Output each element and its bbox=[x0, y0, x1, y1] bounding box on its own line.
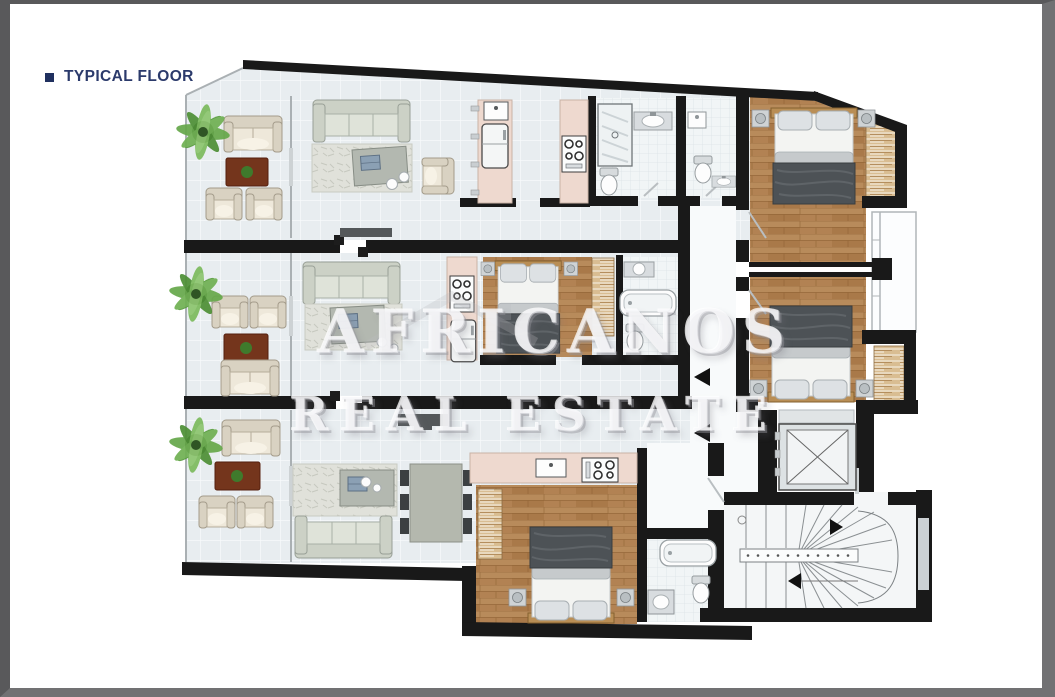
double-bed bbox=[768, 306, 854, 402]
title-bullet-icon bbox=[45, 73, 54, 82]
desk-with-laptop bbox=[340, 470, 394, 506]
sofa bbox=[295, 516, 392, 558]
shower bbox=[598, 104, 632, 166]
stove bbox=[562, 136, 586, 172]
ledge bbox=[779, 410, 854, 423]
nightstand bbox=[858, 110, 875, 127]
bathroom-sink bbox=[688, 112, 706, 128]
armchair bbox=[422, 158, 454, 194]
page-title: TYPICAL FLOOR bbox=[45, 68, 194, 86]
page-title-text: TYPICAL FLOOR bbox=[64, 68, 194, 86]
toilet bbox=[694, 156, 712, 183]
bathtub bbox=[620, 290, 676, 316]
toilet bbox=[692, 576, 710, 603]
double-bed bbox=[771, 108, 857, 204]
fridge bbox=[451, 320, 476, 362]
nightstand bbox=[750, 380, 767, 397]
nightstand bbox=[564, 262, 578, 276]
vanity bbox=[712, 176, 736, 187]
elevator bbox=[775, 424, 856, 490]
nightstand bbox=[509, 589, 526, 606]
nightstand bbox=[617, 589, 634, 606]
toilet bbox=[600, 168, 618, 195]
stove bbox=[582, 458, 618, 482]
tv-console bbox=[340, 228, 392, 237]
sofa bbox=[303, 262, 400, 304]
bathtub bbox=[660, 540, 716, 566]
nightstand bbox=[481, 262, 495, 276]
nightstand bbox=[856, 380, 873, 397]
nightstand bbox=[752, 110, 769, 127]
double-bed bbox=[528, 527, 614, 623]
toilet bbox=[626, 324, 644, 351]
bathroom-sink bbox=[634, 112, 672, 130]
viewer-frame: TYPICAL FLOOR bbox=[0, 0, 1055, 697]
sofa bbox=[313, 100, 410, 142]
kitchen-sink bbox=[484, 102, 508, 120]
kitchen-3 bbox=[470, 453, 637, 483]
dining-area-3 bbox=[400, 464, 472, 542]
floor-plan-page: TYPICAL FLOOR bbox=[10, 4, 1042, 688]
fridge bbox=[482, 124, 508, 168]
tv-console bbox=[398, 414, 448, 426]
floor-plan-drawing bbox=[10, 4, 1042, 688]
bathroom-sink bbox=[633, 263, 645, 275]
dining-table bbox=[410, 464, 462, 542]
kitchen-sink bbox=[536, 459, 566, 477]
bathroom-sink bbox=[653, 595, 669, 609]
